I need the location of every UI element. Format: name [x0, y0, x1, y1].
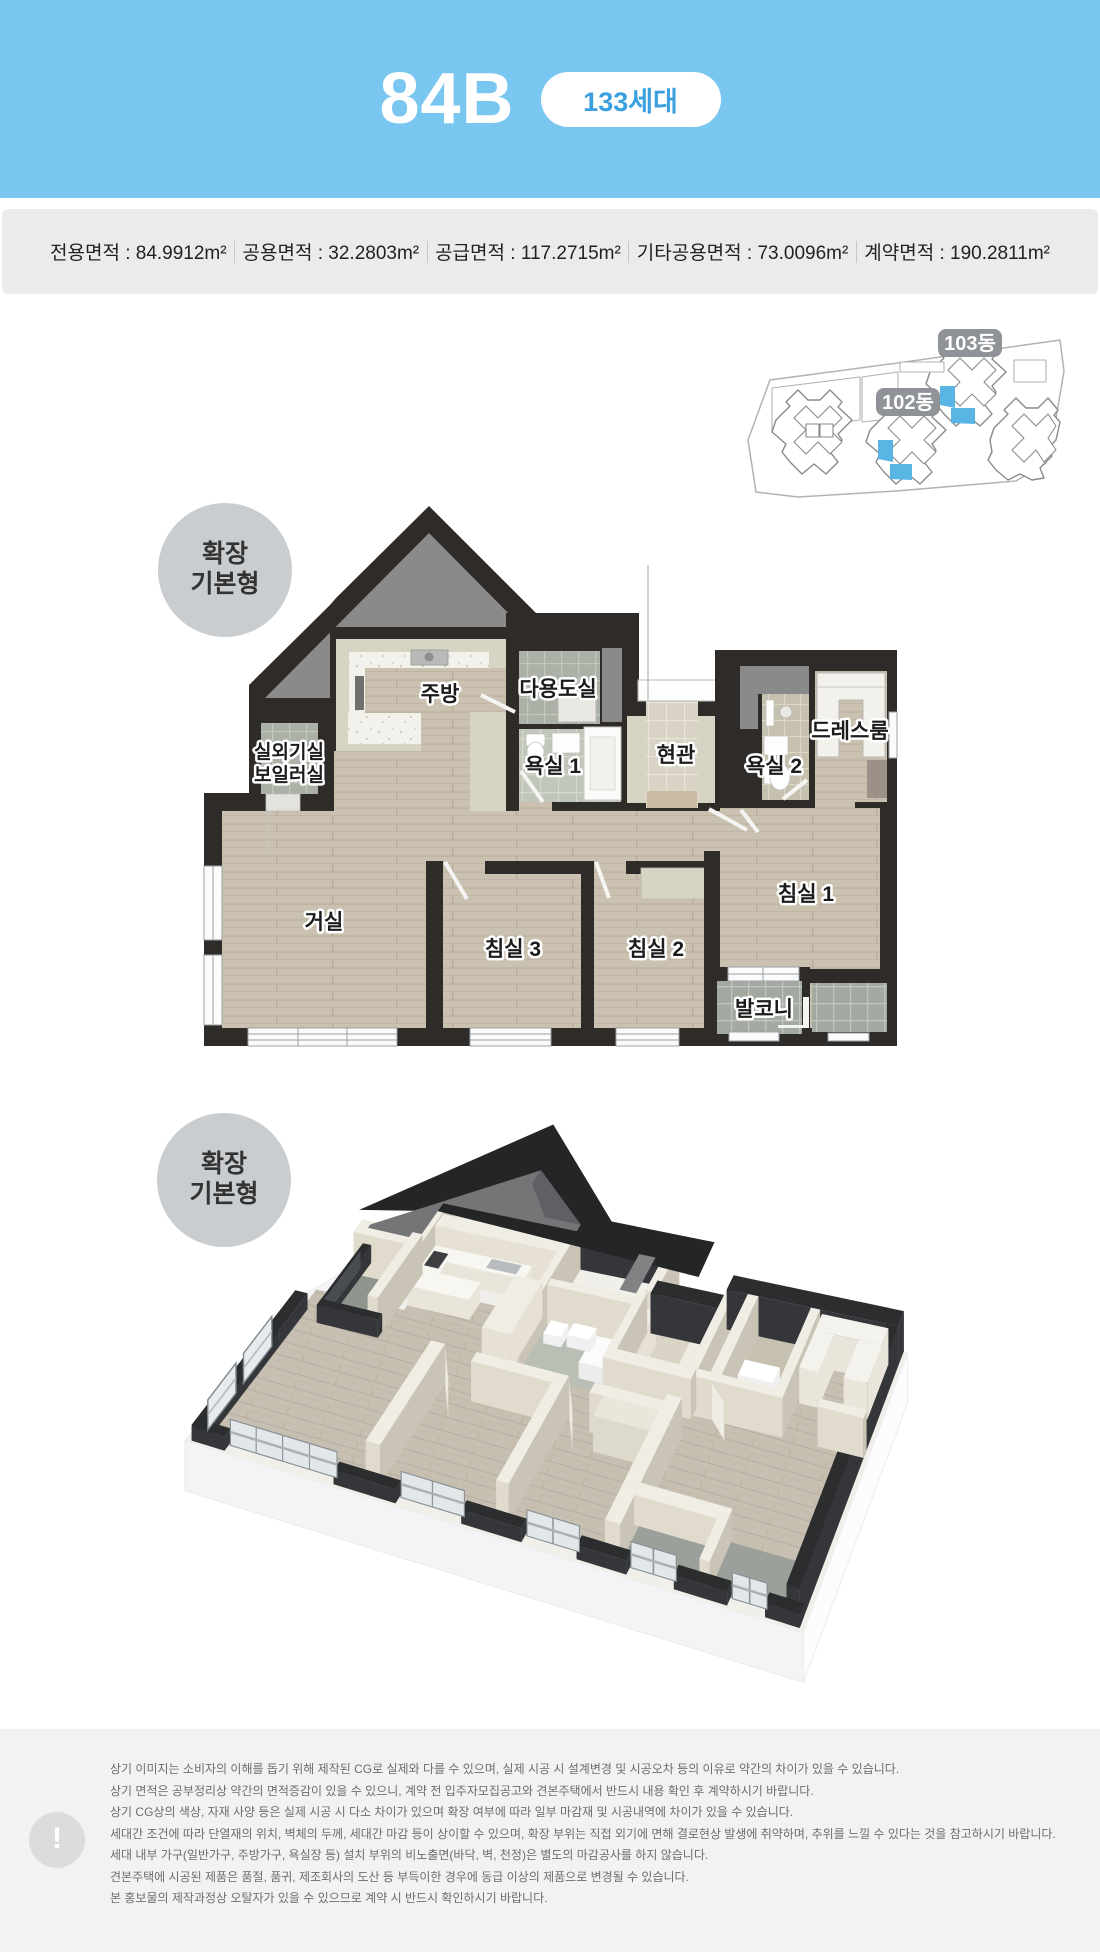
svg-text:확장: 확장	[201, 1150, 247, 1178]
svg-text:기본형: 기본형	[189, 1180, 258, 1208]
